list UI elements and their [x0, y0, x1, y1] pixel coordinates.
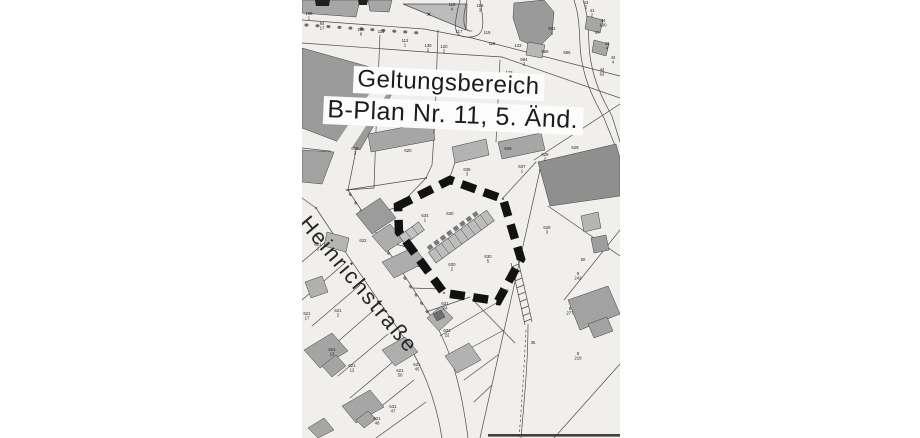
parcel-label: 36	[531, 340, 536, 345]
parcel-label: 117	[456, 29, 463, 34]
parcel-label: 119	[484, 30, 491, 35]
parcel-label: 111	[378, 29, 385, 34]
parcel-label: 586	[563, 50, 571, 55]
parcel-label: 629	[504, 146, 512, 151]
map-canvas: 1051841710861111121130212021171154116311…	[302, 0, 620, 438]
parcel-label: 565	[541, 49, 549, 54]
parcel-label: 620	[404, 148, 412, 153]
parcel-label: 629	[571, 145, 579, 150]
parcel-label: 50	[581, 257, 586, 262]
parcel-label: ×	[427, 10, 432, 19]
parcel-label: 630	[446, 211, 454, 216]
parcel-label: 133	[514, 43, 522, 48]
parcel-label: 622	[359, 238, 367, 243]
scanned-map-page: 1051841710861111121130212021171154116311…	[0, 0, 920, 438]
parcel-label: 47	[595, 30, 600, 35]
parcel-label: 118	[489, 41, 496, 46]
map-svg: 1051841710861111121130212021171154116311…	[302, 0, 620, 438]
parcel-label: 4493	[600, 67, 605, 77]
parcel-label: 8417	[320, 21, 325, 31]
